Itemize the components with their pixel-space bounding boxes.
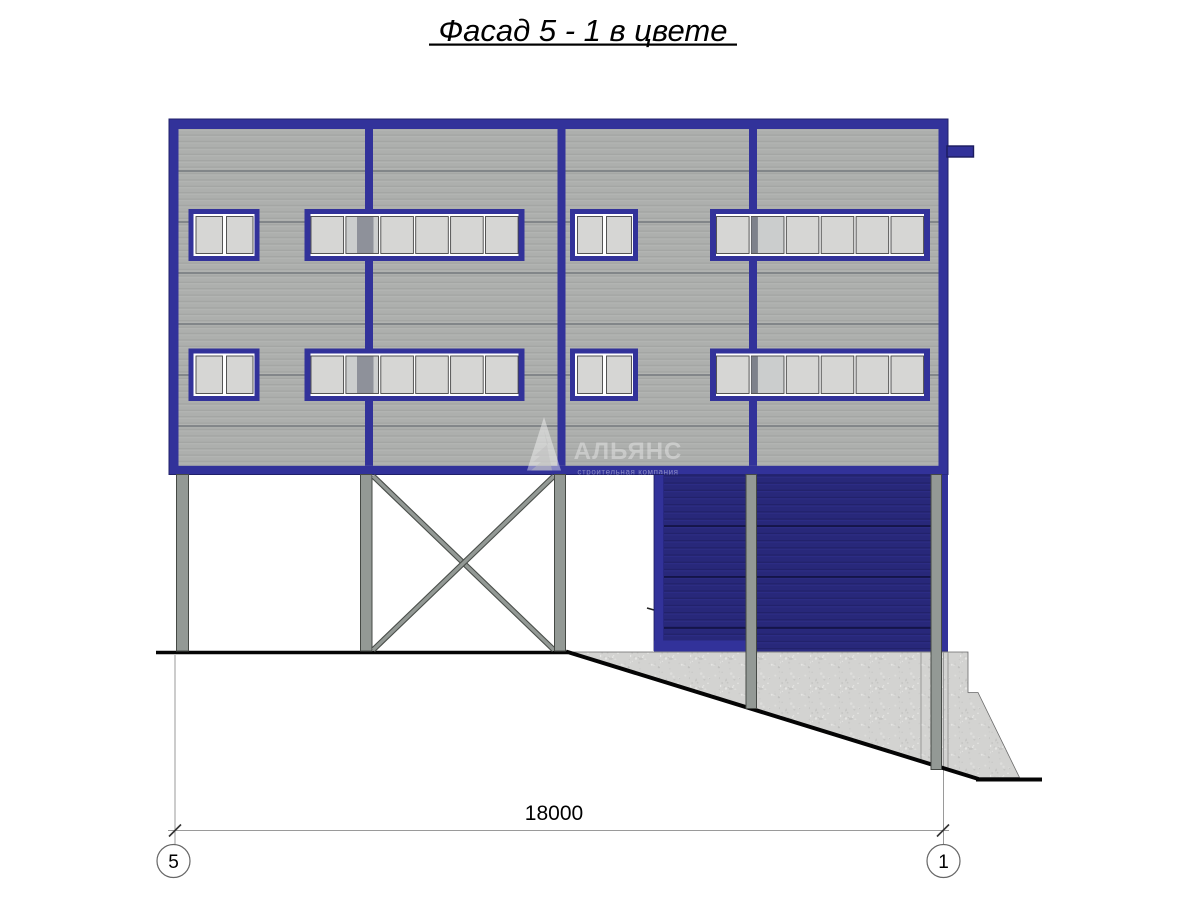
svg-text:АЛЬЯНС: АЛЬЯНС: [574, 438, 683, 465]
svg-text:Фасад 5 - 1 в цвете: Фасад 5 - 1 в цвете: [439, 13, 728, 48]
svg-text:1: 1: [938, 852, 949, 873]
svg-text:5: 5: [168, 852, 179, 873]
svg-text:18000: 18000: [525, 802, 583, 825]
